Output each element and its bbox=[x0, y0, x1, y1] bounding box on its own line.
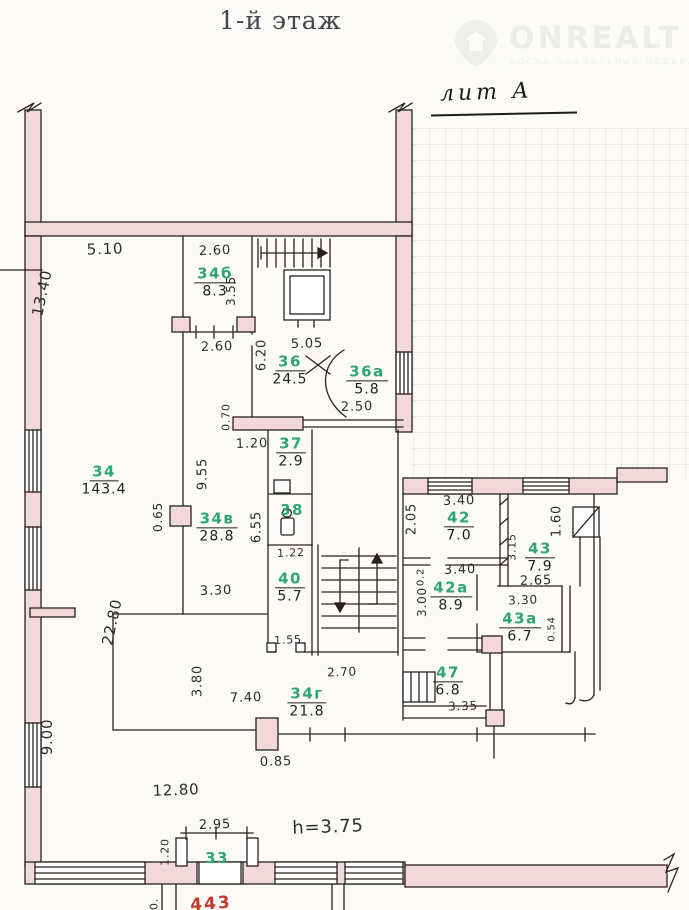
dim-label: 7.40 bbox=[230, 690, 263, 706]
room-area: 24.5 bbox=[272, 373, 307, 388]
dim-label: 3.15 bbox=[506, 533, 519, 561]
room-label-36а: 36а5.8 bbox=[346, 362, 388, 397]
room-area: 7.0 bbox=[444, 529, 474, 544]
room-number: 47 bbox=[433, 664, 463, 682]
dim-label: 9.55 bbox=[196, 458, 211, 490]
red-annotation: 443 bbox=[190, 893, 233, 910]
dim-label: 3.00 bbox=[415, 587, 429, 617]
room-area: 2.9 bbox=[276, 455, 306, 470]
room-area: 21.8 bbox=[287, 705, 326, 720]
room-number: 33 bbox=[202, 850, 232, 867]
dim-label: 0.65 bbox=[151, 502, 165, 532]
dim-label: 3.30 bbox=[508, 592, 538, 607]
dim-label: 0.2 bbox=[416, 568, 427, 586]
dim-label: h=3.75 bbox=[292, 815, 364, 838]
room-area: 7.9 bbox=[525, 560, 555, 575]
dim-label: 6.20 bbox=[255, 339, 270, 371]
room-number: 34б bbox=[194, 265, 236, 283]
room-number: 43 bbox=[525, 540, 555, 558]
room-number: 34в bbox=[197, 510, 238, 528]
room-area: 8.9 bbox=[430, 599, 472, 614]
room-label-34б: 34б8.3 bbox=[194, 264, 236, 299]
room-number: 36 bbox=[275, 353, 305, 371]
dim-label: 0. bbox=[148, 898, 161, 910]
room-label-42а: 42а8.9 bbox=[430, 578, 472, 613]
room-area: 143.4 bbox=[81, 483, 126, 498]
dim-label: 6.55 bbox=[250, 511, 265, 543]
dim-label: 3.40 bbox=[443, 493, 476, 509]
room-area: 5.8 bbox=[346, 383, 388, 398]
room-number: 42 bbox=[444, 509, 474, 527]
dim-label: 1.20 bbox=[236, 436, 269, 452]
plan-labels: 5.102.603.552.606.205.052.5013.400.701.2… bbox=[0, 0, 689, 910]
dim-label: 3.35 bbox=[448, 698, 478, 713]
room-area: 6.7 bbox=[499, 630, 541, 645]
room-number: 37 bbox=[276, 435, 306, 453]
dim-label: 13.40 bbox=[28, 268, 55, 318]
room-label-36: 3624.5 bbox=[272, 352, 307, 387]
room-label-34: 34143.4 bbox=[81, 462, 126, 497]
room-label-34г: 34г21.8 bbox=[287, 684, 326, 719]
room-number: 38 bbox=[277, 502, 307, 519]
dim-label: 2.70 bbox=[327, 664, 357, 679]
room-area: 28.8 bbox=[197, 530, 238, 545]
dim-label: 22.80 bbox=[98, 597, 125, 647]
dim-label: 5.10 bbox=[86, 239, 123, 258]
room-label-38: 38 bbox=[277, 501, 307, 519]
dim-label: 2.05 bbox=[405, 503, 420, 535]
dim-label: 2.60 bbox=[201, 339, 234, 355]
room-number: 34г bbox=[287, 685, 326, 703]
room-area: 8.3 bbox=[194, 285, 236, 300]
dim-label: 1.60 bbox=[550, 505, 565, 537]
dim-label: 12.80 bbox=[152, 780, 200, 800]
dim-label: 3.40 bbox=[444, 562, 477, 578]
dim-label: 2.95 bbox=[199, 817, 232, 833]
dim-label: 0.70 bbox=[220, 403, 233, 431]
room-area: 5.7 bbox=[275, 590, 305, 605]
floor-plan: 1-й этаж ONREALT ДОСКА ОБЪЯВЛЕНИЙ НЕДВИЖ… bbox=[0, 0, 689, 910]
dim-label: 2.65 bbox=[520, 573, 553, 589]
dim-label: 2.60 bbox=[199, 243, 232, 259]
room-label-34в: 34в28.8 bbox=[197, 509, 238, 544]
dim-label: 9.00 bbox=[38, 719, 56, 756]
dim-label: 1.20 bbox=[159, 838, 172, 866]
dim-label: 3.80 bbox=[191, 665, 206, 697]
dim-label: 0.85 bbox=[260, 754, 293, 770]
room-label-43: 437.9 bbox=[525, 539, 555, 574]
dim-label: 3.30 bbox=[200, 583, 233, 599]
room-number: 42а bbox=[430, 579, 472, 597]
dim-label: 1.22 bbox=[277, 546, 305, 560]
room-label-43а: 43а6.7 bbox=[499, 609, 541, 644]
dim-label: 2.50 bbox=[341, 399, 374, 415]
room-label-42: 427.0 bbox=[444, 508, 474, 543]
room-label-47: 476.8 bbox=[433, 663, 463, 698]
room-label-37: 372.9 bbox=[276, 434, 306, 469]
room-label-33: 33 bbox=[202, 849, 232, 867]
room-number: 40 bbox=[275, 570, 305, 588]
dim-label: 0.54 bbox=[547, 616, 558, 641]
room-number: 34 bbox=[89, 463, 119, 481]
room-number: 43а bbox=[499, 610, 541, 628]
room-number: 36а bbox=[346, 363, 388, 381]
room-area: 6.8 bbox=[433, 684, 463, 699]
dim-label: 5.05 bbox=[291, 336, 324, 352]
dim-label: 1.55 bbox=[274, 633, 302, 647]
room-label-40: 405.7 bbox=[275, 569, 305, 604]
